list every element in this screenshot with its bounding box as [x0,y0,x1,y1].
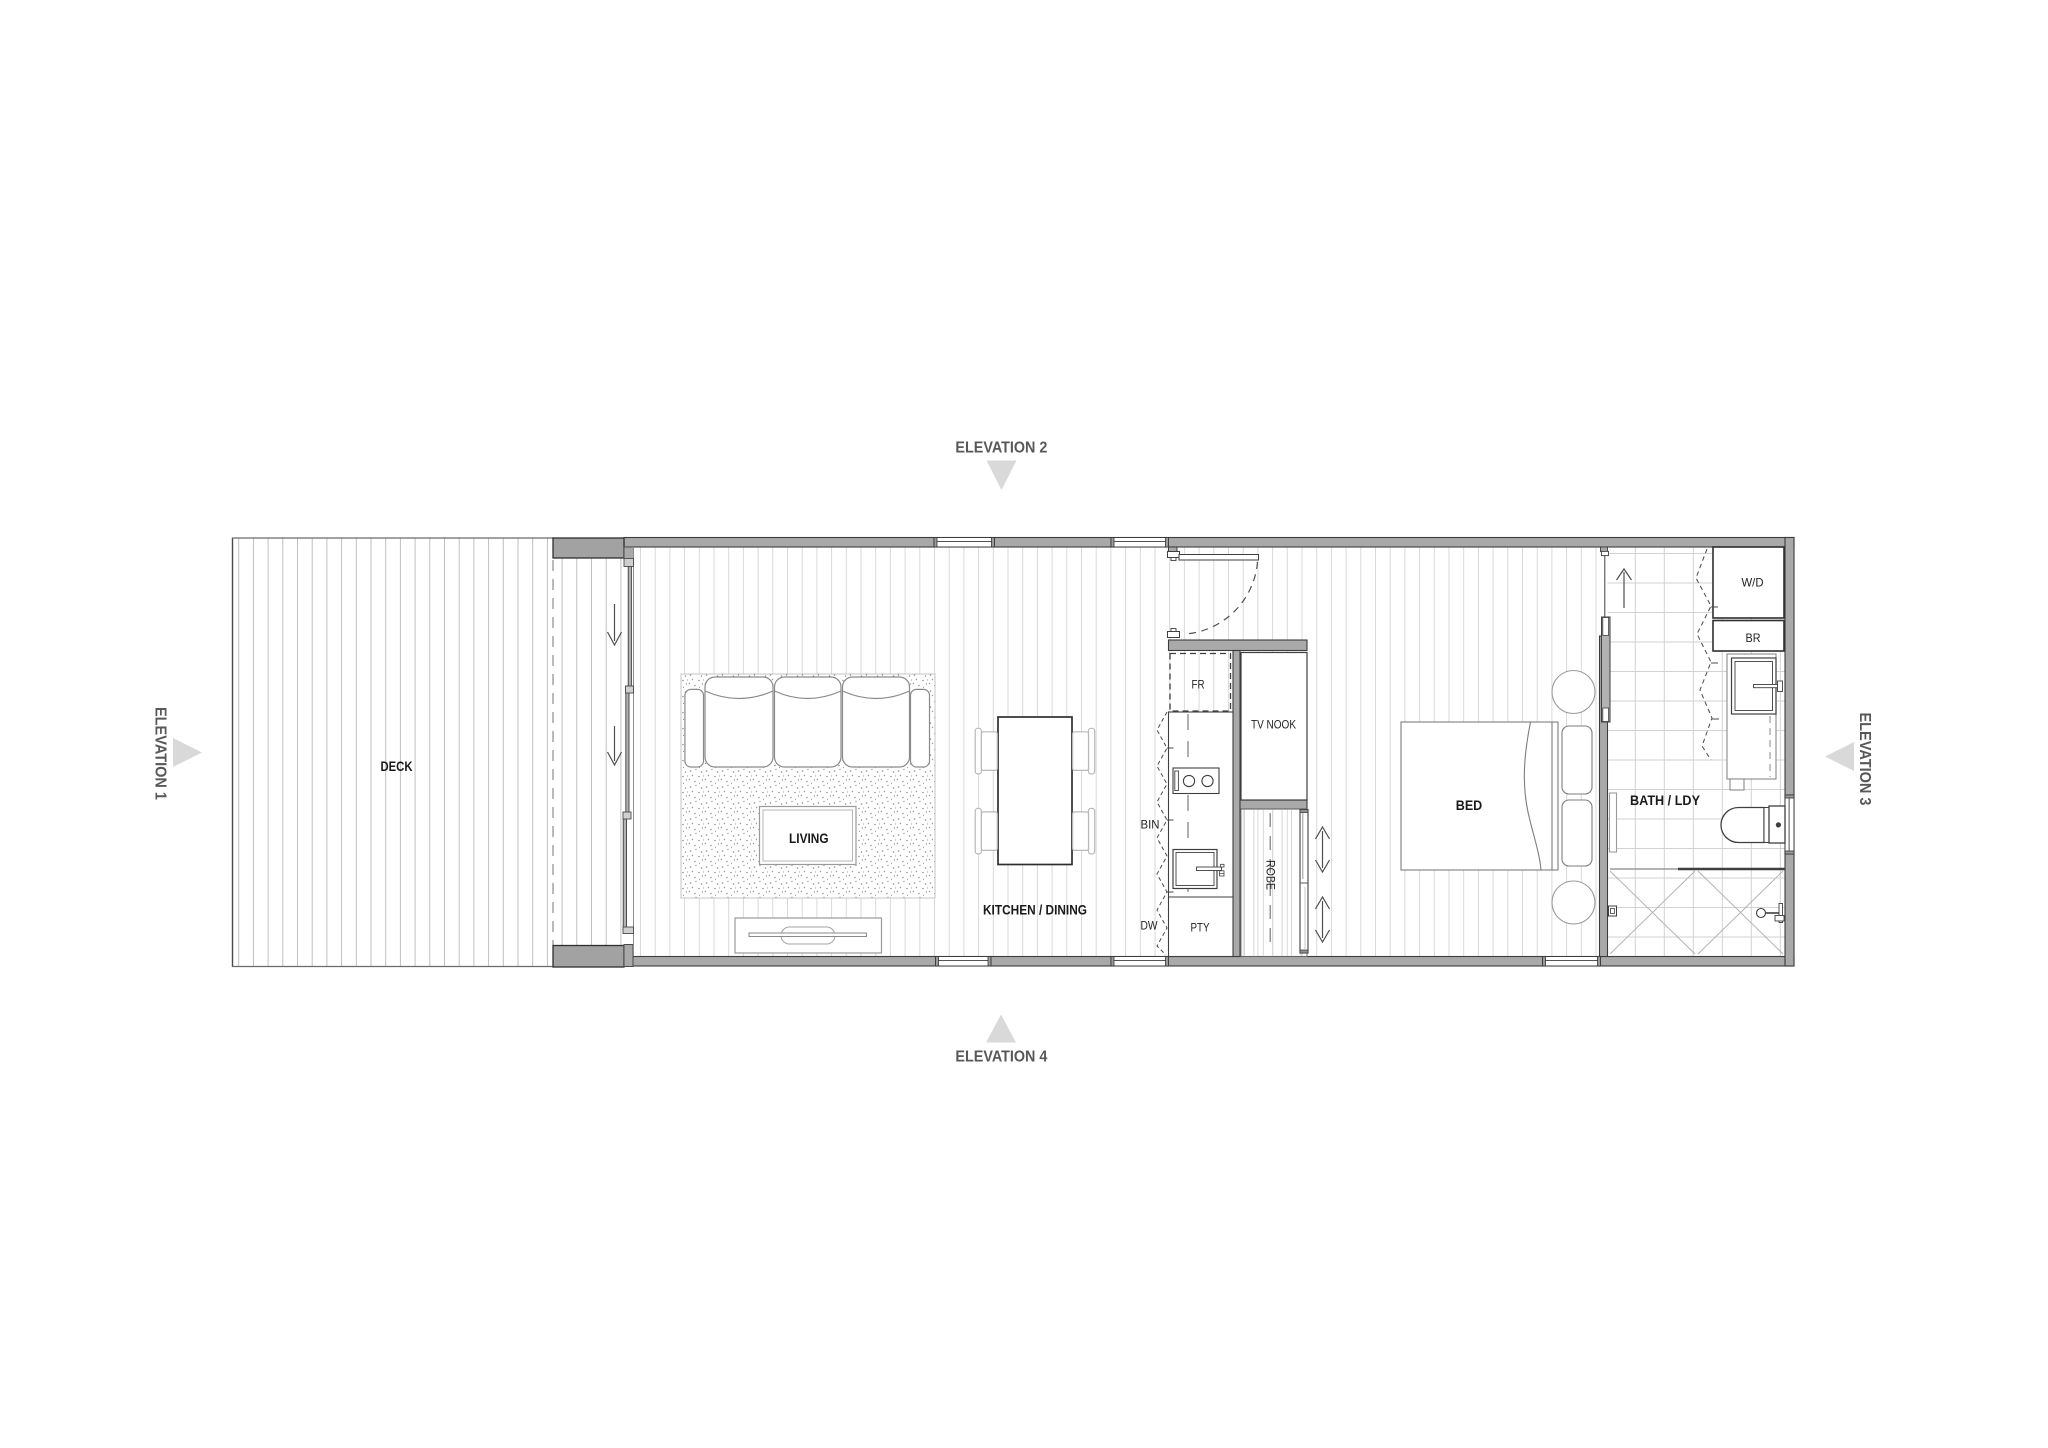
svg-text:ROBE: ROBE [1263,860,1277,890]
svg-text:ELEVATION 2: ELEVATION 2 [955,440,1047,457]
svg-text:ELEVATION 1: ELEVATION 1 [152,707,169,800]
svg-text:BIN: BIN [1141,818,1160,832]
svg-text:ELEVATION 4: ELEVATION 4 [955,1048,1047,1065]
svg-text:BATH / LDY: BATH / LDY [1630,792,1701,808]
svg-text:BR: BR [1746,631,1761,645]
svg-text:FR: FR [1192,678,1205,692]
svg-text:TV NOOK: TV NOOK [1251,718,1296,732]
svg-text:ELEVATION 3: ELEVATION 3 [1856,713,1873,806]
svg-text:KITCHEN / DINING: KITCHEN / DINING [983,902,1087,918]
svg-text:DECK: DECK [381,758,413,774]
svg-text:PTY: PTY [1191,921,1210,935]
svg-text:DW: DW [1141,919,1159,933]
svg-text:LIVING: LIVING [789,830,829,846]
svg-text:BED: BED [1456,797,1483,813]
svg-text:W/D: W/D [1742,576,1764,590]
